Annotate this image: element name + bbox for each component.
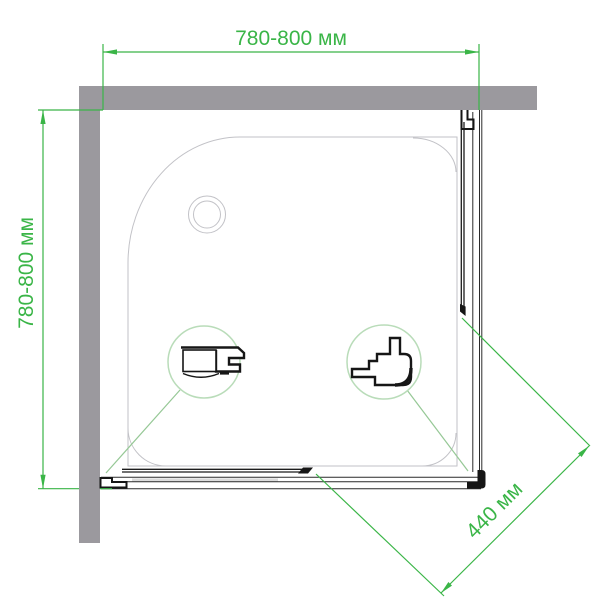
left-depth-label: 780-800 мм	[15, 217, 38, 329]
top-wall	[79, 86, 537, 110]
diagram-canvas: 780-800 мм 780-800 мм 440 мм	[0, 0, 607, 600]
door-rail-profile-box	[183, 350, 216, 372]
arrowhead-down	[40, 475, 45, 489]
corner-post-bracket	[467, 470, 486, 489]
door-rail-profile-foot	[220, 372, 229, 375]
bottom-door-assembly	[101, 468, 482, 489]
bottom-door-guide-bracket	[101, 478, 127, 488]
top-wall-profile-bracket	[462, 110, 474, 129]
arrowhead-right	[465, 49, 479, 54]
right-door-assembly	[460, 110, 486, 489]
shower-tray	[128, 137, 457, 466]
dimension-line	[441, 446, 589, 593]
arrowhead-up	[40, 110, 45, 124]
dimension-left-depth	[38, 110, 112, 489]
extension-line	[316, 474, 444, 596]
right-door-end-cap	[460, 304, 466, 316]
bottom-track-highlight	[132, 478, 278, 481]
left-wall	[79, 86, 100, 543]
extension-line	[462, 318, 590, 446]
top-width-label: 780-800 мм	[235, 27, 347, 50]
arrowhead-left	[103, 49, 117, 54]
tray-outline	[128, 137, 457, 466]
bottom-door-end-cap	[298, 468, 313, 474]
shower-plan-drawing: 780-800 мм 780-800 мм 440 мм	[0, 0, 607, 600]
